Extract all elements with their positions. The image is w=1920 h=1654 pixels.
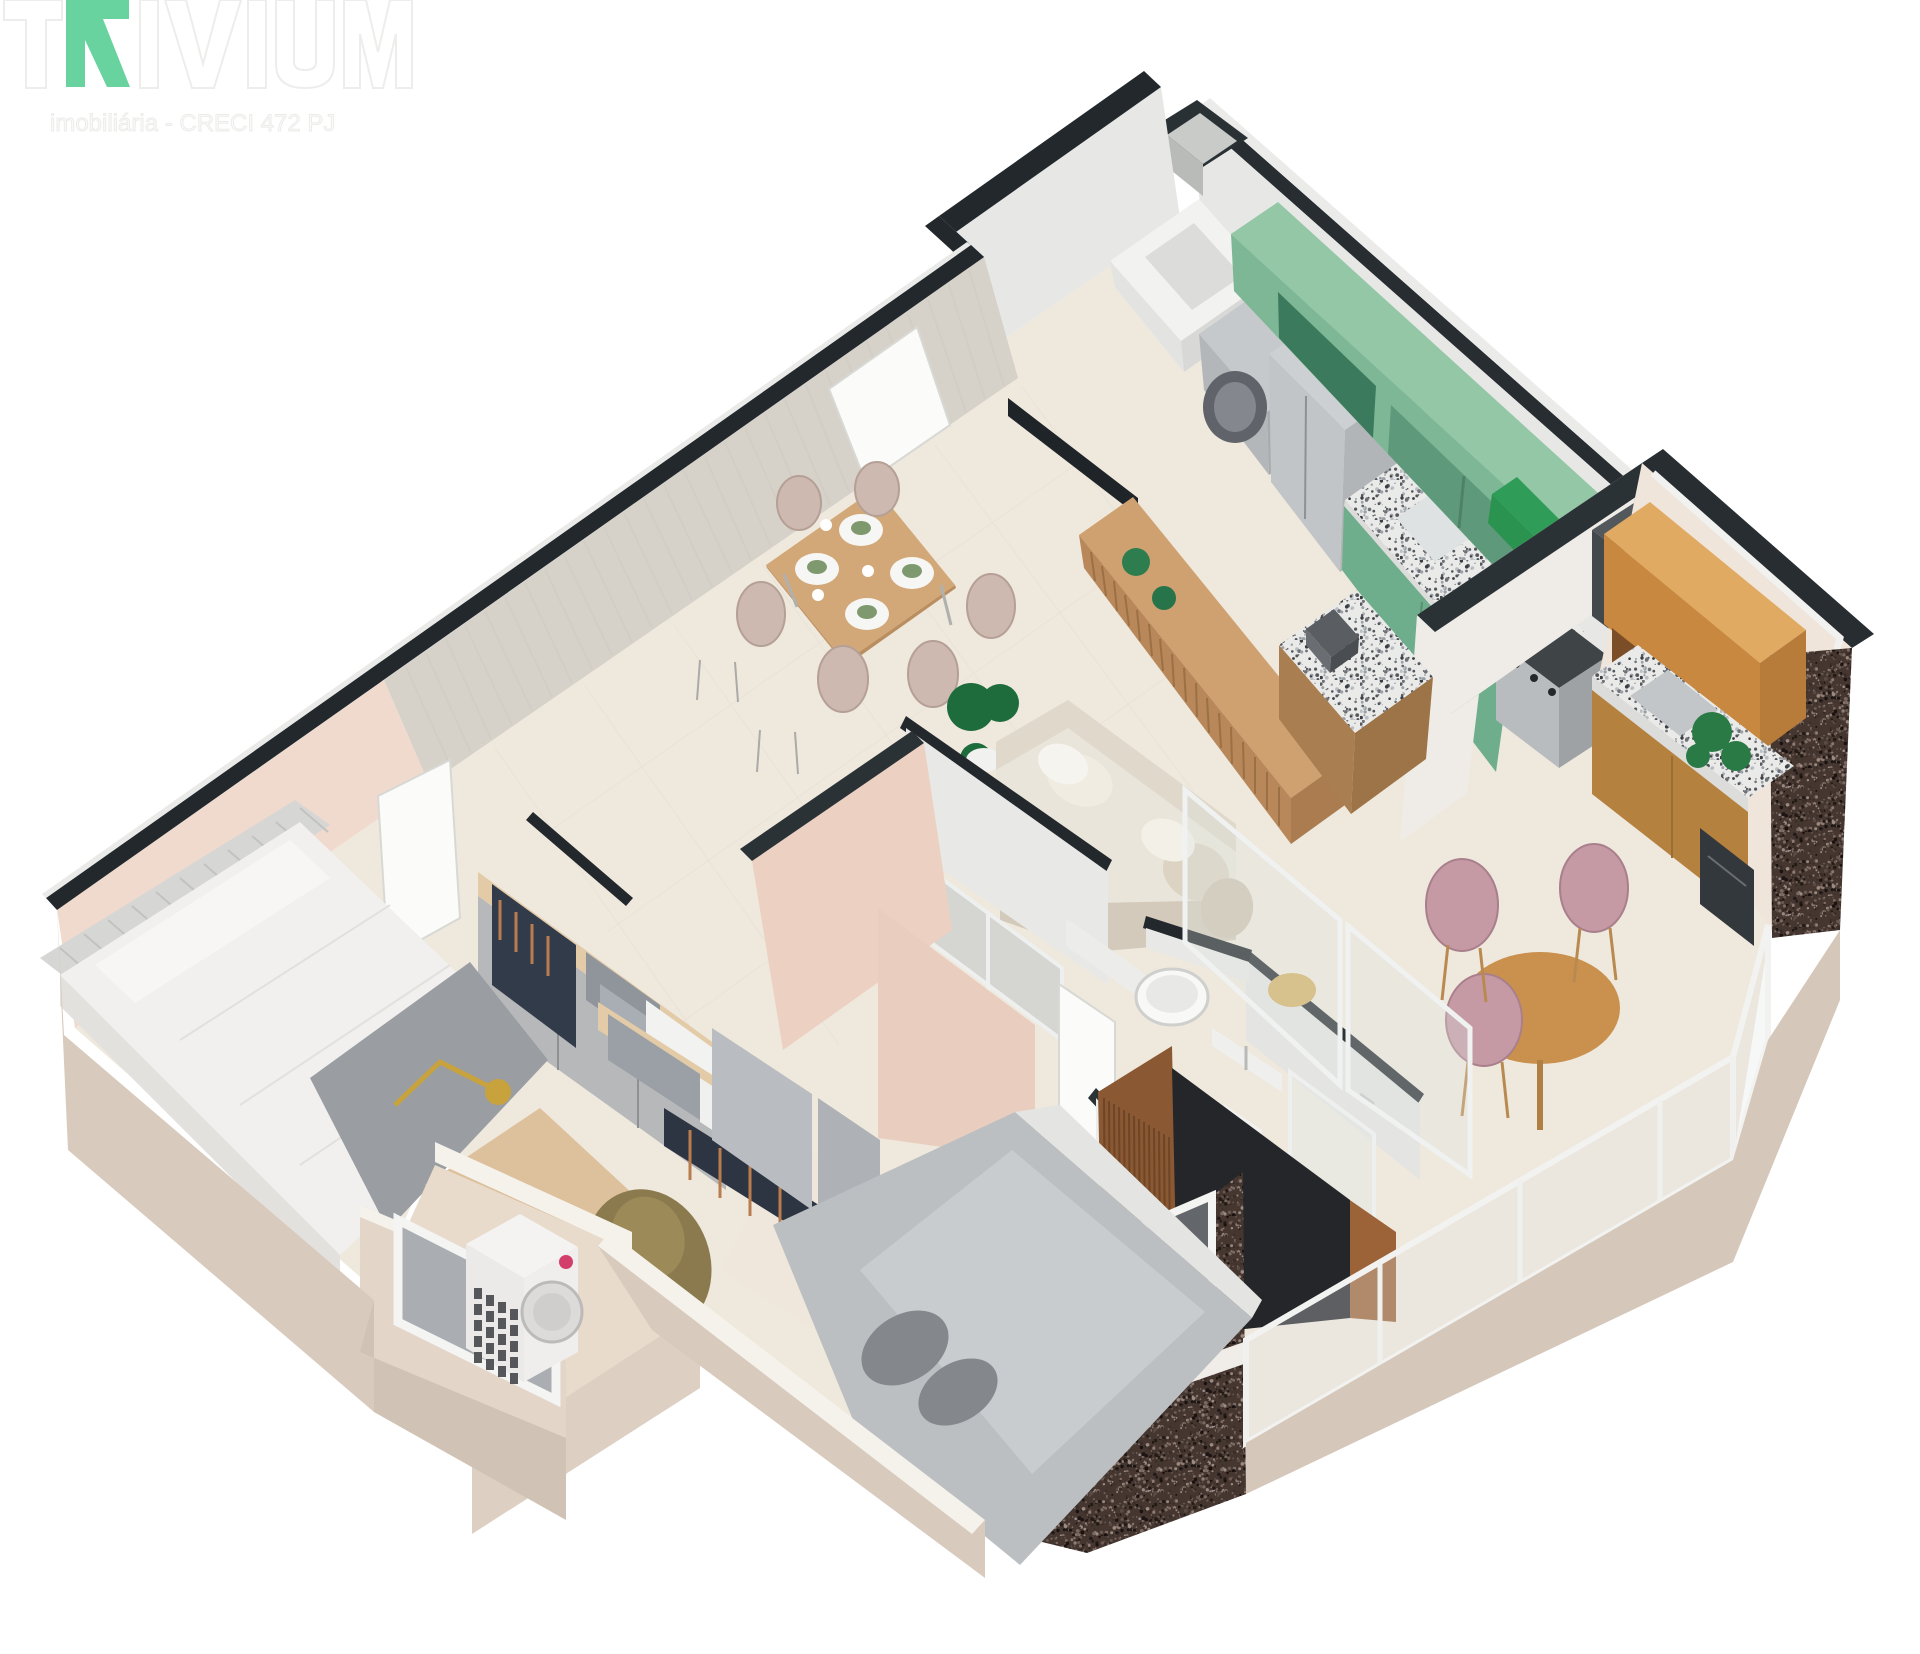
svg-text:imobiliária - CRECI 472 PJ: imobiliária - CRECI 472 PJ: [50, 110, 335, 137]
